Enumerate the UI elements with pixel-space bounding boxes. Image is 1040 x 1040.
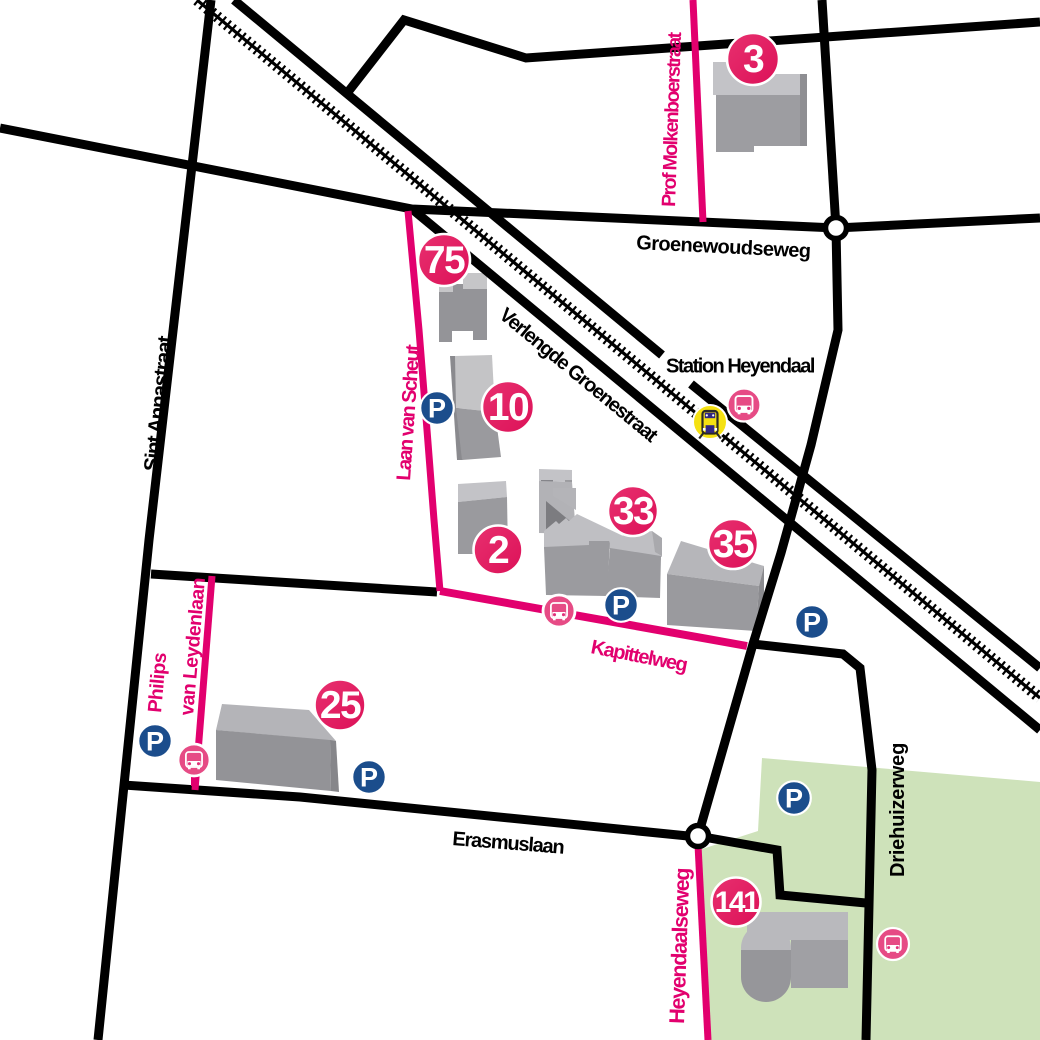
svg-text:P: P bbox=[428, 394, 446, 424]
svg-text:3: 3 bbox=[743, 38, 764, 81]
svg-text:Station Heyendaal: Station Heyendaal bbox=[666, 356, 815, 378]
svg-text:25: 25 bbox=[320, 684, 361, 727]
svg-text:10: 10 bbox=[488, 386, 529, 429]
svg-text:P: P bbox=[785, 784, 803, 814]
svg-text:75: 75 bbox=[424, 239, 465, 282]
svg-text:35: 35 bbox=[713, 523, 754, 566]
svg-text:141: 141 bbox=[715, 886, 760, 919]
svg-text:P: P bbox=[146, 727, 164, 757]
svg-text:P: P bbox=[803, 608, 821, 638]
svg-text:2: 2 bbox=[488, 529, 509, 572]
svg-text:P: P bbox=[360, 763, 378, 793]
svg-text:Driehuizerweg: Driehuizerweg bbox=[887, 743, 909, 877]
svg-text:P: P bbox=[612, 591, 630, 621]
svg-text:33: 33 bbox=[613, 490, 654, 533]
